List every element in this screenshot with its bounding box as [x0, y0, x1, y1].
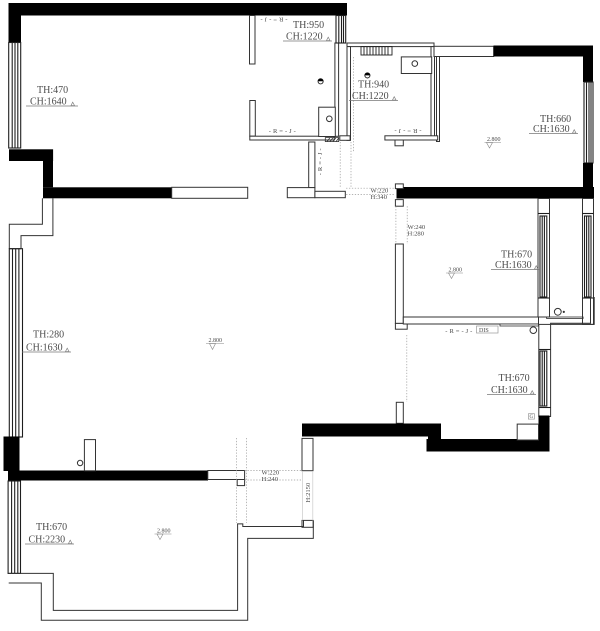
- svg-text:2.800: 2.800: [449, 268, 463, 274]
- svg-text:-R=-J-: -R=-J-: [317, 146, 324, 175]
- svg-text:H:2150: H:2150: [305, 482, 312, 502]
- svg-text:G: G: [530, 415, 534, 420]
- svg-text:-R=-J-: -R=-J-: [392, 127, 421, 134]
- svg-text:TH:470: TH:470: [37, 85, 68, 96]
- svg-text:TH:670: TH:670: [36, 522, 67, 533]
- svg-text:H:280: H:280: [408, 230, 425, 237]
- svg-text:2.800: 2.800: [157, 529, 171, 535]
- svg-text:2.800: 2.800: [209, 338, 223, 344]
- svg-text:-R=-J-: -R=-J-: [258, 16, 287, 23]
- svg-text:TH:670: TH:670: [499, 373, 530, 384]
- svg-text:TH:940: TH:940: [358, 80, 389, 91]
- svg-text:H:340: H:340: [371, 194, 388, 201]
- svg-text:2.800: 2.800: [487, 137, 501, 143]
- svg-text:TH:280: TH:280: [33, 330, 64, 341]
- svg-text:TH:950: TH:950: [293, 20, 324, 31]
- svg-text:-R=-J-: -R=-J-: [269, 128, 298, 135]
- svg-text:TH:670: TH:670: [501, 250, 532, 261]
- svg-text:DIS: DIS: [479, 328, 489, 334]
- svg-text:-R=-J-: -R=-J-: [445, 328, 474, 335]
- svg-text:H:240: H:240: [262, 476, 279, 483]
